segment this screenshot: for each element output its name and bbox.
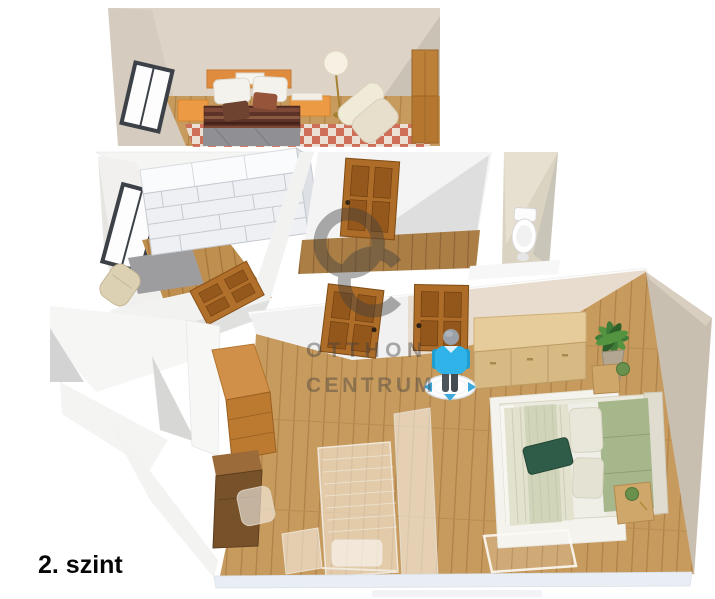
pillow-cream [569, 407, 603, 453]
accent-pillow [252, 92, 278, 110]
floor-plan-render: OC OTTHON CENTRUM 2. szint [0, 0, 715, 599]
ghost-pillow [332, 540, 382, 566]
bottom-wall-shadow [372, 590, 542, 597]
cabinet-chest-front [226, 392, 276, 460]
room-lower-level [50, 268, 712, 597]
figure-head-highlight [445, 331, 453, 337]
ghost-bed [318, 442, 398, 577]
accent-pillow [222, 100, 250, 121]
nightstand-left [178, 100, 208, 121]
ball-lamp-green [626, 488, 639, 501]
floor-plan-svg: OC OTTHON CENTRUM 2. szint [0, 0, 715, 599]
ghost-partition-wall [394, 408, 438, 578]
ghost-chair [236, 485, 277, 527]
wardrobe-top-bedroom [412, 50, 438, 143]
floor-label: 2. szint [38, 551, 123, 579]
staircase-void-walls [50, 306, 220, 578]
watermark-line2: CENTRUM [306, 374, 436, 397]
nightstand-head [592, 364, 620, 394]
watermark-line1: OTTHON [306, 339, 428, 362]
ball-lamp-green [617, 363, 630, 376]
room-bedroom-top [108, 8, 440, 149]
pillow [213, 78, 251, 104]
pillow-cream [572, 457, 603, 498]
ghost-nightstand [282, 528, 322, 574]
lamp-shade [324, 51, 348, 75]
nightstand-top-slab [292, 93, 322, 100]
figure-head [443, 329, 459, 345]
ghost-floor-outline [484, 530, 576, 572]
